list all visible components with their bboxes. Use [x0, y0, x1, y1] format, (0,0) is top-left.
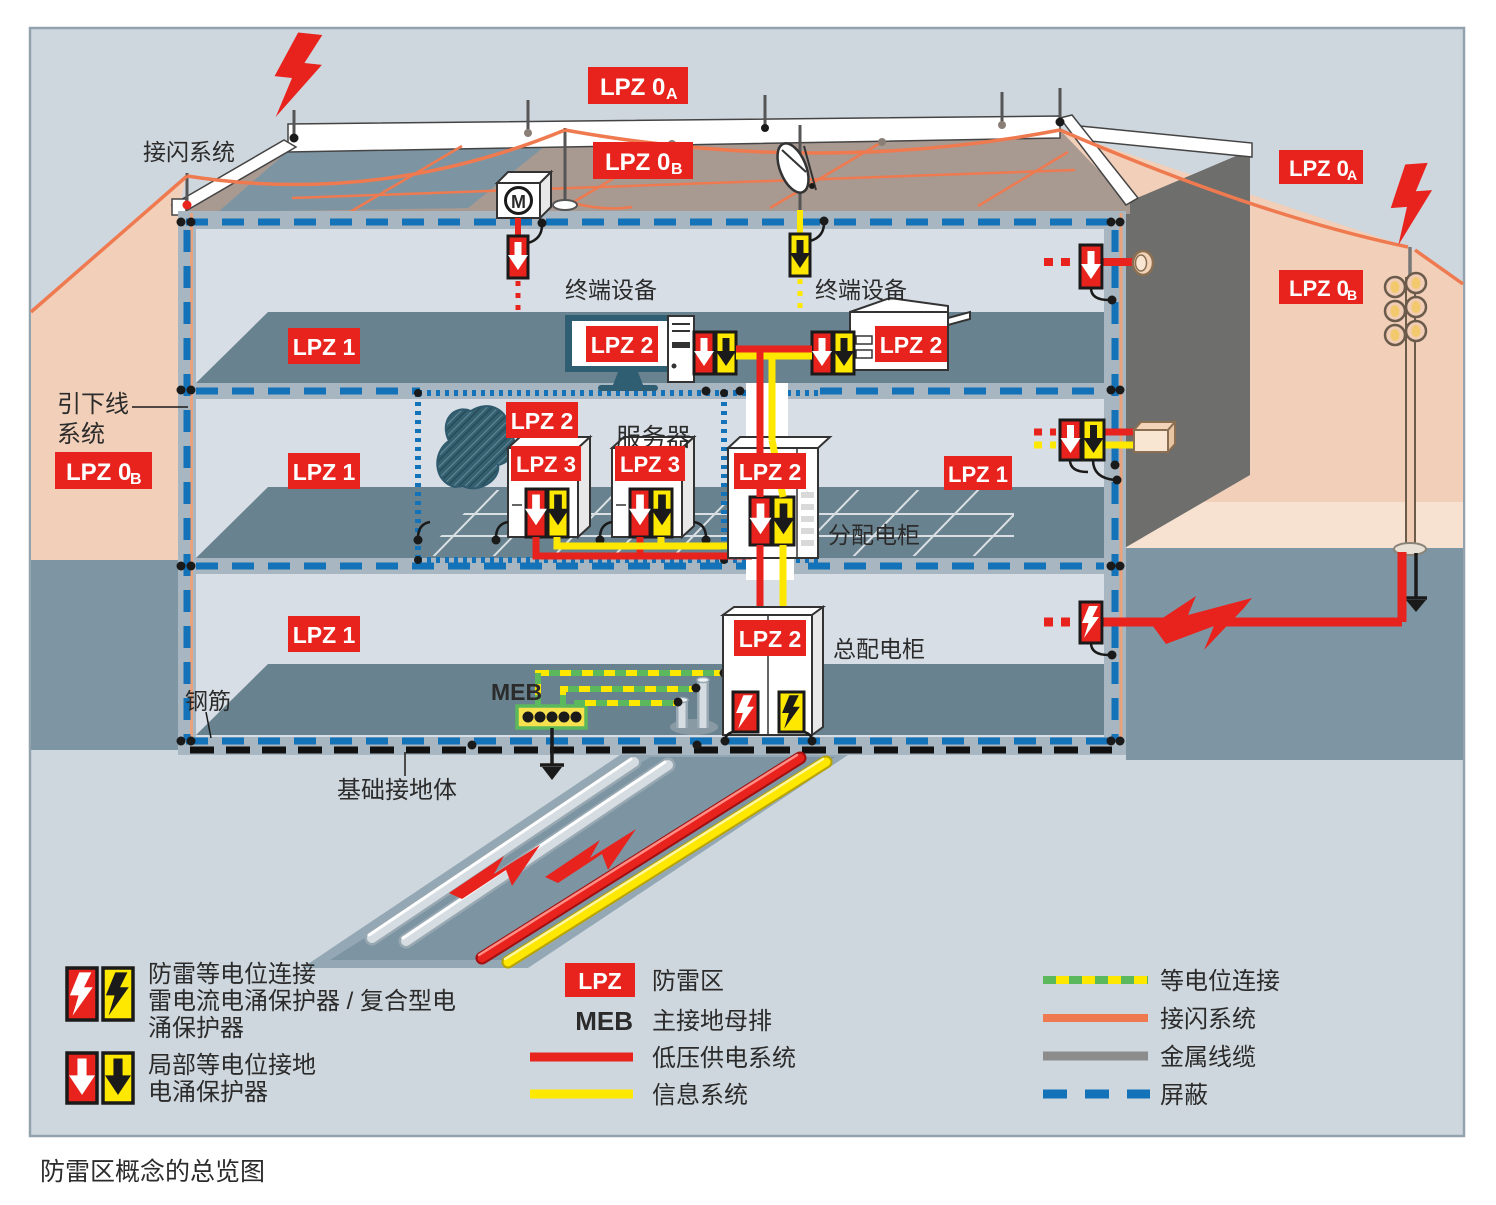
- svg-text:LPZ 0: LPZ 0: [600, 74, 665, 101]
- lpz-diagram: M: [0, 0, 1496, 1205]
- svg-text:雷电流电涌保护器 / 复合型电: 雷电流电涌保护器 / 复合型电: [148, 988, 456, 1015]
- down-conductor-label-2: 系统: [57, 421, 105, 448]
- air-termination-label: 接闪系统: [143, 139, 235, 165]
- svg-text:LPZ 0: LPZ 0: [1289, 276, 1349, 301]
- lightning-protection-zones-figure: M: [0, 0, 1496, 1205]
- svg-text:LPZ 0: LPZ 0: [605, 149, 670, 176]
- foundation-earth-label: 基础接地体: [337, 777, 457, 804]
- terminal-right-label: 终端设备: [815, 277, 907, 303]
- meb-label: MEB: [491, 679, 542, 705]
- svg-text:LPZ 0: LPZ 0: [1289, 156, 1349, 181]
- svg-text:LPZ 2: LPZ 2: [511, 408, 574, 434]
- svg-text:电涌保护器: 电涌保护器: [148, 1079, 268, 1106]
- lpz0b-badge: LPZ 0 B: [1279, 270, 1363, 304]
- svg-text:LPZ 2: LPZ 2: [739, 459, 802, 485]
- svg-text:B: B: [130, 471, 142, 488]
- lpz2-badge: LPZ 2: [586, 326, 658, 362]
- figure-caption: 防雷区概念的总览图: [40, 1158, 265, 1186]
- motor-box: M: [497, 172, 551, 218]
- lpz1-badge: LPZ 1: [944, 456, 1012, 490]
- svg-text:金属线缆: 金属线缆: [1160, 1044, 1256, 1071]
- svg-text:LPZ 2: LPZ 2: [739, 626, 802, 652]
- lpz1-badge: LPZ 1: [288, 328, 360, 364]
- svg-text:MEB: MEB: [575, 1006, 633, 1036]
- svg-text:LPZ 1: LPZ 1: [293, 334, 356, 360]
- cable-chase-lower: [746, 556, 794, 580]
- svg-text:LPZ 1: LPZ 1: [948, 462, 1008, 487]
- ground-right: [1126, 548, 1463, 760]
- svg-text:防雷区: 防雷区: [652, 968, 724, 995]
- lpz2-badge: LPZ 2: [734, 620, 806, 656]
- svg-text:LPZ 1: LPZ 1: [293, 459, 356, 485]
- lpz0a-badge: LPZ 0 A: [588, 67, 688, 104]
- svg-text:LPZ 3: LPZ 3: [620, 452, 680, 477]
- lpz3-badge: LPZ 3: [511, 446, 581, 481]
- distribution-cabinet-label: 分配电柜: [828, 522, 920, 548]
- svg-text:接闪系统: 接闪系统: [1160, 1006, 1256, 1033]
- svg-text:B: B: [671, 161, 683, 178]
- lpz0b-badge: LPZ 0 B: [55, 452, 152, 489]
- main-cabinet-label: 总配电柜: [833, 636, 925, 662]
- pole-insulators: [1385, 273, 1426, 345]
- lpz3-badge: LPZ 3: [615, 446, 685, 481]
- rebar-label: 钢筋: [185, 688, 231, 714]
- lpz0b-badge: LPZ 0 B: [593, 142, 693, 179]
- legend-meb: MEB 主接地母排: [575, 1006, 772, 1036]
- pc-tower: [668, 316, 694, 382]
- svg-text:LPZ 2: LPZ 2: [591, 332, 654, 358]
- svg-text:LPZ 3: LPZ 3: [516, 452, 576, 477]
- svg-text:LPZ 2: LPZ 2: [880, 332, 943, 358]
- lpz1-badge: LPZ 1: [288, 616, 360, 652]
- svg-text:低压供电系统: 低压供电系统: [652, 1045, 796, 1072]
- legend-spd2-text: 局部等电位接地: [148, 1052, 316, 1079]
- ground-left: [31, 560, 178, 750]
- svg-text:涌保护器: 涌保护器: [148, 1015, 244, 1042]
- svg-text:A: A: [1347, 167, 1357, 183]
- lpz2-badge: LPZ 2: [875, 326, 947, 362]
- svg-text:A: A: [666, 86, 678, 103]
- legend-spd1-text: 防雷等电位连接: [148, 961, 316, 988]
- svg-text:B: B: [1347, 287, 1357, 303]
- svg-text:LPZ: LPZ: [578, 968, 621, 994]
- motor-letter: M: [511, 192, 526, 212]
- svg-text:主接地母排: 主接地母排: [652, 1008, 772, 1035]
- meb-busbar-icon: [517, 706, 586, 728]
- terminal-left-label: 终端设备: [565, 277, 657, 303]
- lpz2-badge: LPZ 2: [506, 402, 578, 438]
- down-conductor-label-1: 引下线: [57, 391, 129, 418]
- svg-text:LPZ 1: LPZ 1: [293, 622, 356, 648]
- lpz0a-badge: LPZ 0 A: [1279, 150, 1363, 184]
- svg-text:屏蔽: 屏蔽: [1160, 1082, 1208, 1109]
- lpz2-badge: LPZ 2: [734, 453, 806, 489]
- svg-text:等电位连接: 等电位连接: [1160, 968, 1280, 995]
- svg-text:信息系统: 信息系统: [652, 1082, 748, 1109]
- svg-text:LPZ 0: LPZ 0: [66, 459, 131, 486]
- lpz1-badge: LPZ 1: [288, 453, 360, 489]
